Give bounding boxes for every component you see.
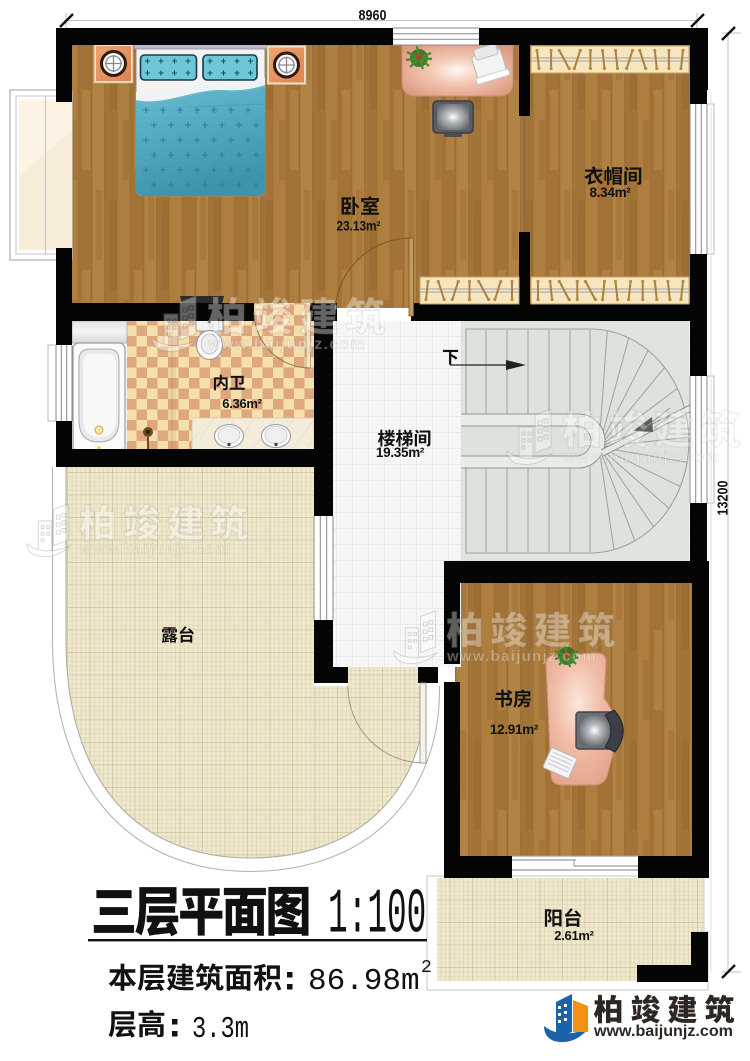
svg-text:8.34m²: 8.34m² [590,185,632,200]
svg-text:12.91m²: 12.91m² [490,722,539,737]
svg-text:23.13m²: 23.13m² [337,219,381,234]
svg-text:www.baijunjz.com: www.baijunjz.com [562,449,721,466]
svg-text:www.baijunjz.com: www.baijunjz.com [446,649,597,665]
svg-text:19.35m²: 19.35m² [376,445,425,460]
svg-text:8960: 8960 [359,8,387,24]
svg-text:2: 2 [421,958,432,978]
svg-text:6.36m²: 6.36m² [222,396,262,411]
svg-text:2.61m²: 2.61m² [554,928,594,943]
svg-text:3.3m: 3.3m [192,1012,249,1047]
svg-text:www.baijunjz.com: www.baijunjz.com [79,542,230,558]
svg-text:13200: 13200 [716,481,732,516]
svg-text:www.baijunjz.com: www.baijunjz.com [207,336,366,353]
svg-text:86.98m: 86.98m [308,964,420,999]
svg-text:www.baijunjz.com: www.baijunjz.com [593,1023,733,1040]
